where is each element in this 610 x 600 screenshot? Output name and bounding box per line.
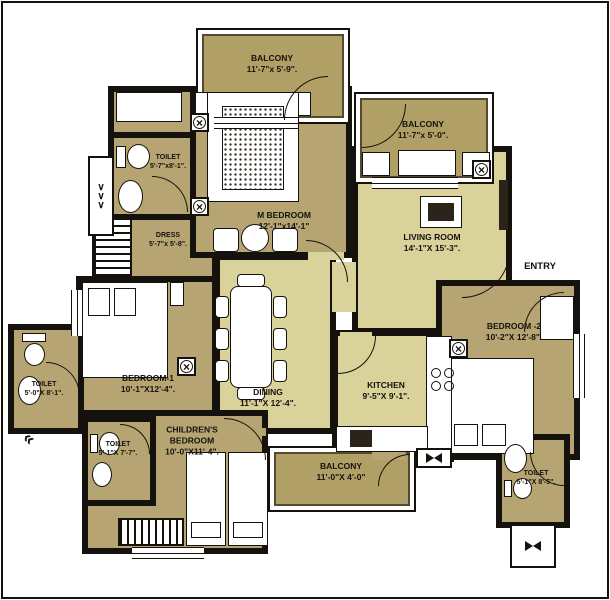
entry-label: ENTRY xyxy=(524,261,556,273)
bedroom1-window xyxy=(71,290,83,336)
shaft-cross-circle-icon xyxy=(177,357,196,376)
toilet-left-label: TOILET 5'-0"X 8'-1". xyxy=(25,380,64,398)
toilet-master-label: TOILET 5'-7"x8'-1". xyxy=(150,153,186,171)
balcony-right-label: BALCONY 11'-7"x 5'-0". xyxy=(398,119,448,141)
bedroom1-bedside xyxy=(170,282,184,306)
dining-table xyxy=(230,286,272,388)
dining-chair xyxy=(273,360,287,382)
dining-chair xyxy=(215,360,229,382)
m-bedroom-label: M BEDROOM 12'-1"x14'-1" xyxy=(257,210,311,232)
master-wardrobe xyxy=(116,92,182,122)
tv-unit xyxy=(499,180,508,230)
children-wardrobe-hatch xyxy=(118,518,184,546)
balcony-bottom-label: BALCONY 11'-0"X 4'-0" xyxy=(317,461,366,483)
toilet-children-label: TOILET 5'-1"X 7'-7". xyxy=(99,440,138,458)
duct-bowtie-icon xyxy=(525,541,541,551)
bedroom1-pillow xyxy=(114,288,136,316)
toilet-children-room xyxy=(82,416,156,506)
dining-chair xyxy=(273,328,287,350)
wc-bowl-icon xyxy=(127,144,150,169)
dining-chair xyxy=(273,296,287,318)
bedroom1-label: BEDROOM-1 10'-1"X12'-4". xyxy=(121,373,175,395)
bedroom2-window xyxy=(573,334,585,398)
shaft-cross-circle-icon xyxy=(190,113,209,132)
bedroom2-label: BEDROOM -2 10'-2"X 12'-8". xyxy=(486,321,543,343)
dining-chair xyxy=(215,296,229,318)
living-window xyxy=(372,177,458,189)
wc-tank-icon xyxy=(504,480,512,497)
lift-shaft: ∨ ∨ ∨ xyxy=(88,156,114,236)
wc-bowl-icon xyxy=(24,343,45,366)
kitchen-sink xyxy=(350,430,372,447)
exhaust-fan-icon xyxy=(472,160,491,179)
washbasin-icon xyxy=(92,462,112,487)
bedroom2-pillow xyxy=(454,424,478,446)
children-pillow-1 xyxy=(191,522,221,538)
wc-tank-icon xyxy=(22,333,46,342)
duct-bowtie-icon xyxy=(426,453,442,463)
bedroom2-pillow xyxy=(482,424,506,446)
center-table-top xyxy=(428,203,454,221)
shaft-cross-circle-icon xyxy=(190,197,209,216)
toilet-br-label: TOILET 5'-1"X 8'-5". xyxy=(517,469,556,487)
duct-box xyxy=(416,448,452,468)
shaft-bottom-right xyxy=(510,524,556,568)
dress-label: DRESS 5'-7"x 5'-8". xyxy=(149,231,187,249)
children-pillow-2 xyxy=(233,522,263,538)
washbasin-icon xyxy=(118,180,143,213)
chevron-icon: ∨ xyxy=(97,201,104,210)
wc-tank-icon xyxy=(116,146,126,168)
dining-chair xyxy=(237,274,265,287)
dining-label: DINING 11'-1"X 12'-4". xyxy=(240,387,296,409)
hob-icon xyxy=(431,368,454,391)
balcony-top-label: BALCONY 11'-7"x 5'-9". xyxy=(247,53,297,75)
shaft-cross-circle-icon xyxy=(449,339,468,358)
living-label: LIVING ROOM 14'-1"X 15'-3". xyxy=(403,232,460,254)
children-bedroom-label: CHILDREN'S BEDROOM 10'-0"X11'-4". xyxy=(148,424,236,457)
kitchen-label: KITCHEN 9'-5"X 9'-1". xyxy=(362,380,409,402)
sofa-main xyxy=(398,150,456,176)
wc-tank-icon xyxy=(90,434,98,453)
dining-chair xyxy=(215,328,229,350)
armchair-left xyxy=(362,152,390,176)
chair-left xyxy=(213,228,239,252)
floor-plan: ∨ ∨ ∨ « BALCONY 11'-7"x 5'-9". BALCONY 1… xyxy=(0,0,610,600)
children-window xyxy=(132,547,204,559)
bedroom1-pillow xyxy=(88,288,110,316)
